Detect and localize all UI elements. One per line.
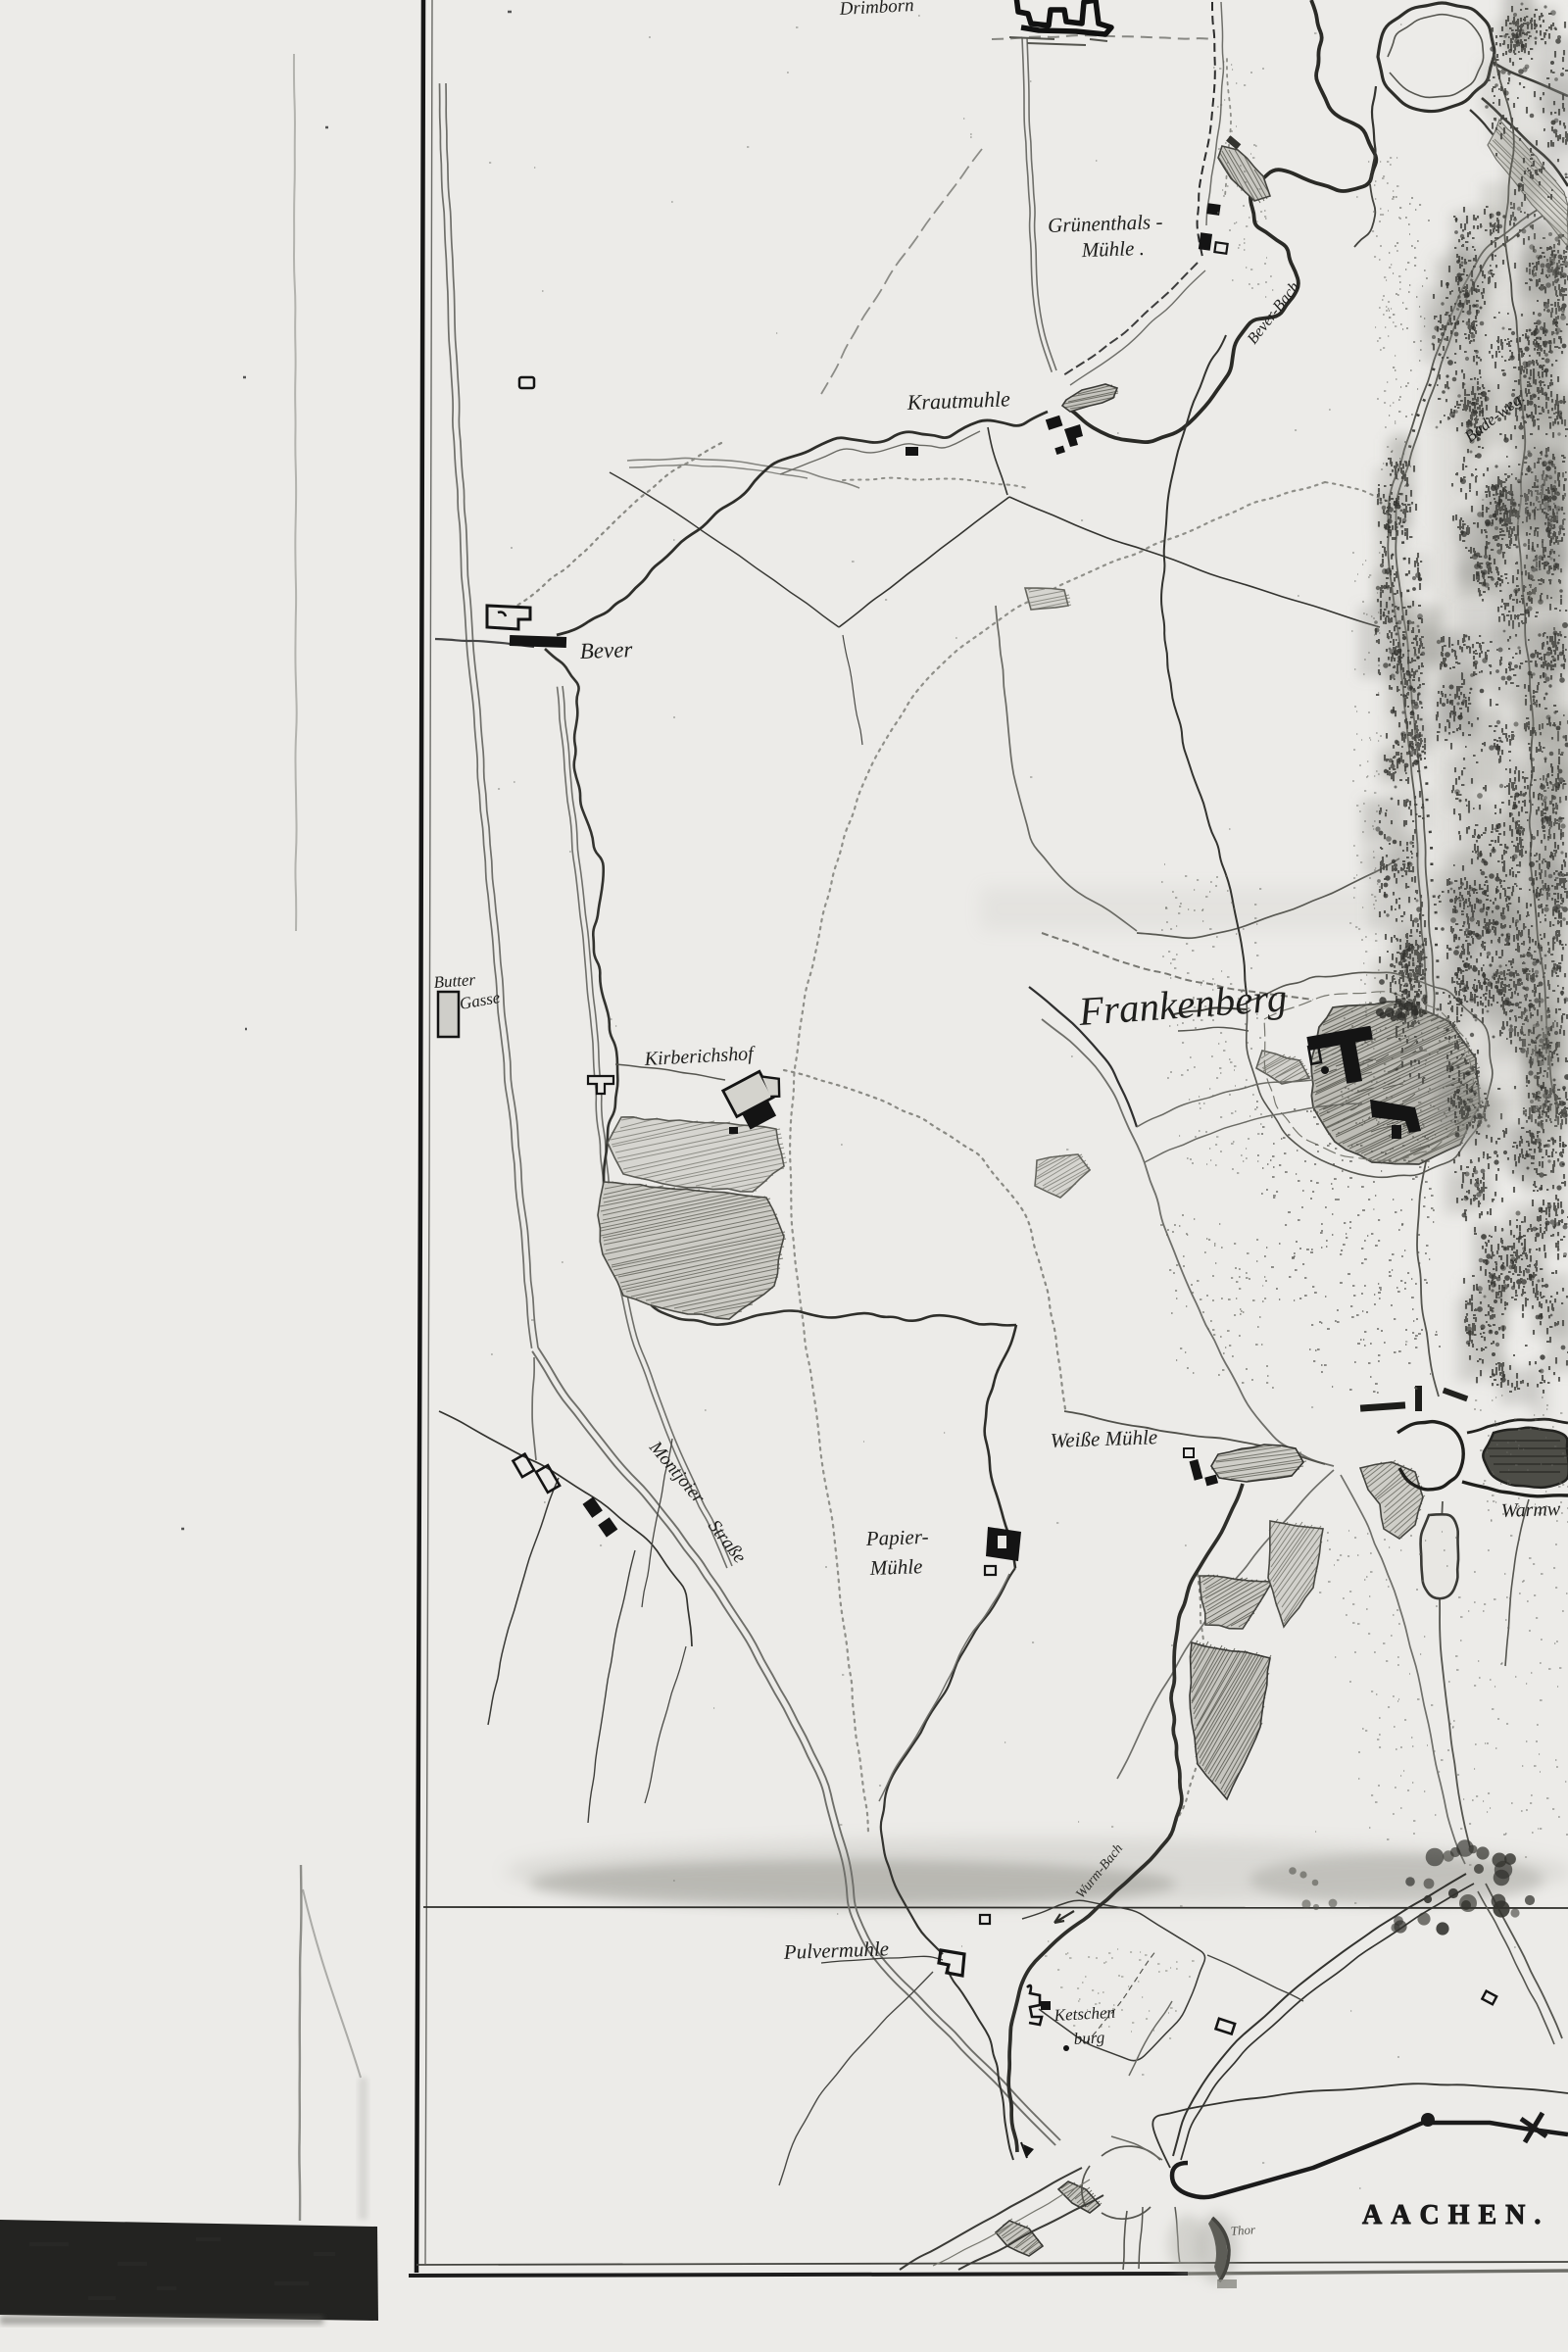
svg-text:Papier-: Papier- <box>864 1525 929 1550</box>
svg-text:Krautmuhle: Krautmuhle <box>906 386 1010 415</box>
svg-text:Mühle: Mühle <box>868 1554 922 1580</box>
svg-text:Bever: Bever <box>579 637 634 663</box>
svg-text:Grünenthals -: Grünenthals - <box>1048 210 1163 237</box>
svg-text:Weiße Mühle: Weiße Mühle <box>1050 1425 1157 1452</box>
svg-text:Pulvermuhle: Pulvermuhle <box>782 1936 889 1964</box>
svg-text:burg: burg <box>1073 2028 1104 2048</box>
svg-text:Butter: Butter <box>433 970 476 992</box>
svg-text:Ketschen: Ketschen <box>1053 2003 1115 2025</box>
svg-text:Mühle .: Mühle . <box>1080 236 1145 262</box>
svg-text:AACHEN.: AACHEN. <box>1362 2200 1549 2230</box>
svg-text:Thor: Thor <box>1230 2222 1256 2238</box>
svg-text:Warmw: Warmw <box>1500 1498 1561 1522</box>
